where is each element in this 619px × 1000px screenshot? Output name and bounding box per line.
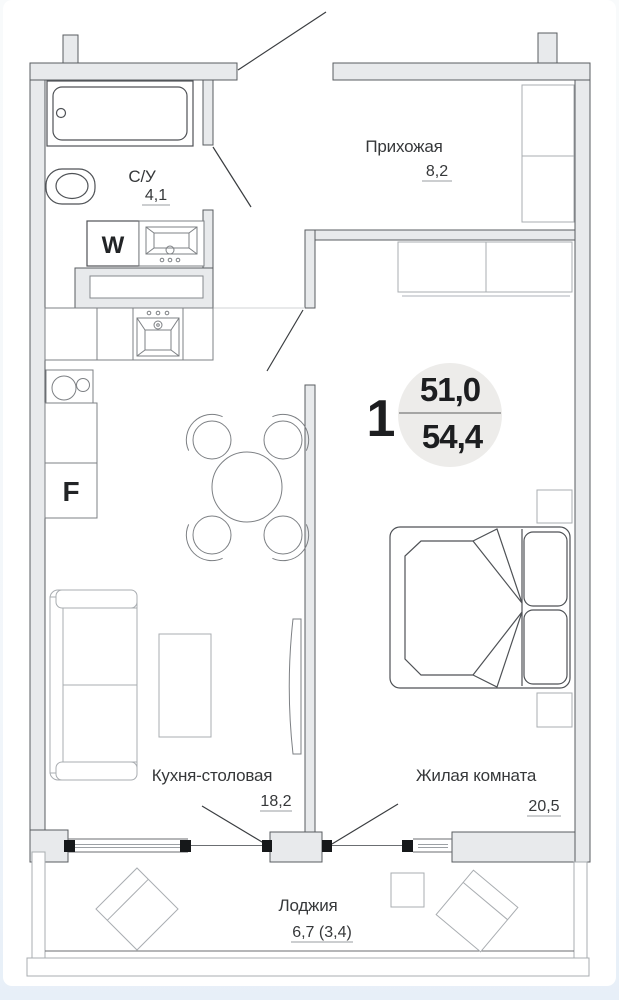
sofa-back (50, 597, 63, 773)
sofa-armrest (56, 590, 137, 608)
window-mullion (262, 840, 272, 852)
sofa-cushion (63, 608, 137, 685)
dining-table (212, 452, 282, 522)
wall-bedroom-loggia (452, 832, 575, 862)
wall-right-outer (575, 80, 590, 862)
room-label-hallway: Прихожая (365, 137, 442, 156)
kitchen-cabinet (45, 403, 97, 463)
coffee-table (159, 634, 211, 737)
room-area-bathroom: 4,1 (145, 187, 167, 204)
wall-chimney-left (63, 35, 78, 63)
kitchen-counter-top (45, 308, 213, 360)
stove-box (46, 370, 93, 403)
window-mullion (402, 840, 413, 852)
sofa-armrest (56, 762, 137, 780)
pillow (524, 610, 567, 684)
loggia-side-table (391, 873, 424, 907)
wall-kitchen-bedroom-upper (305, 230, 315, 308)
wall-kitchen-bedroom-lower (305, 385, 315, 838)
bedroom-wardrobe (398, 242, 572, 296)
wall-top-right (333, 63, 590, 80)
wall-top-left (30, 63, 237, 80)
fridge: F (45, 463, 97, 518)
room-area-hallway: 8,2 (426, 163, 448, 180)
nightstand (537, 693, 572, 727)
window-mullion (64, 840, 75, 852)
sofa (50, 590, 137, 780)
nightstand (537, 490, 572, 523)
apartment-number: 1 (367, 390, 395, 448)
wall-left-outer (30, 63, 45, 830)
stove (46, 370, 93, 403)
area-total-value: 54,4 (422, 418, 484, 455)
fridge-label: F (62, 476, 79, 507)
floor-plan-page: W С/У 4,1 Прихожая 8,2 (0, 0, 619, 1000)
room-label-living: Жилая комната (416, 766, 537, 785)
kitchen-counter (45, 308, 213, 360)
open-door-leaf (289, 619, 301, 754)
wall-bathroom-right-upper (203, 80, 213, 145)
wall-balcony-pier (270, 832, 322, 862)
washing-machine-label: W (102, 232, 125, 259)
loggia-outer-frame (27, 958, 589, 976)
floor-plan: W С/У 4,1 Прихожая 8,2 (0, 0, 619, 1000)
room-area-kitchen: 18,2 (260, 793, 291, 810)
window-mullion (322, 840, 332, 852)
wall-hall-bedroom (305, 230, 575, 240)
hallway-wardrobe-box (522, 85, 574, 222)
bathroom-sink (139, 221, 204, 266)
bathtub (47, 81, 193, 146)
room-area-loggia: 6,7 (3,4) (292, 924, 352, 941)
bed (390, 527, 570, 688)
washing-machine: W (87, 221, 139, 266)
room-label-loggia: Лоджия (278, 896, 337, 915)
pillow (524, 532, 567, 606)
room-area-living: 20,5 (528, 798, 559, 815)
room-label-kitchen: Кухня-столовая (152, 766, 273, 785)
bedroom-wardrobe-box (398, 242, 572, 292)
loggia-wall-left (32, 852, 45, 959)
area-main-value: 51,0 (420, 371, 480, 408)
bathroom-pocket-door (90, 276, 203, 298)
hallway-wardrobe (522, 85, 574, 222)
room-label-bathroom: С/У (128, 167, 156, 186)
sofa-cushion (63, 685, 137, 762)
wall-chimney-right (538, 33, 557, 63)
window-mullion (180, 840, 191, 852)
toilet (46, 169, 95, 204)
loggia-wall-right (574, 862, 587, 959)
